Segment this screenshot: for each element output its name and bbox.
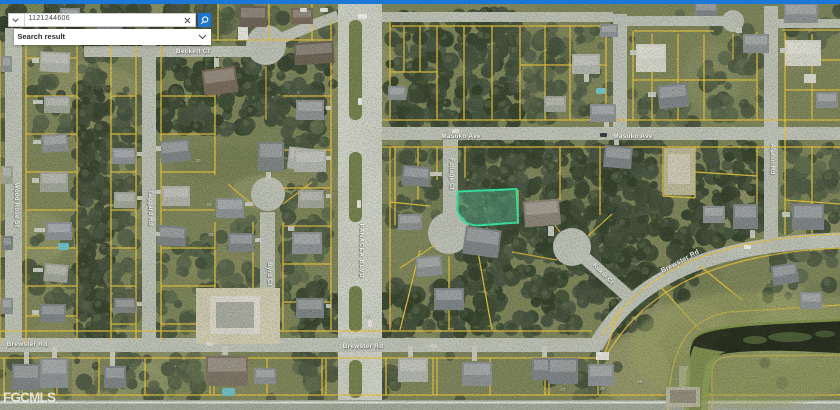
svg-text:Foliage Ct: Foliage Ct xyxy=(448,158,455,190)
svg-text:Brewster Rd: Brewster Rd xyxy=(7,341,48,348)
svg-text:27: 27 xyxy=(560,387,566,392)
svg-text:28: 28 xyxy=(364,313,370,318)
svg-text:Masuko Ave: Masuko Ave xyxy=(441,133,481,140)
svg-text:PANACEA BLVD: PANACEA BLVD xyxy=(358,224,364,279)
svg-text:Byrd Ct: Byrd Ct xyxy=(266,262,273,286)
svg-text:30: 30 xyxy=(195,158,201,163)
svg-text:Masuko Ave: Masuko Ave xyxy=(613,133,653,140)
svg-text:Brewster Rd: Brewster Rd xyxy=(343,343,384,350)
svg-text:26: 26 xyxy=(599,386,605,391)
svg-text:Wood Rose St: Wood Rose St xyxy=(13,183,20,227)
svg-text:25: 25 xyxy=(637,379,643,384)
svg-text:Alphin Rd: Alphin Rd xyxy=(769,143,776,174)
svg-text:32: 32 xyxy=(208,232,214,237)
svg-text:Beckett Ct: Beckett Ct xyxy=(176,48,211,55)
svg-text:33: 33 xyxy=(206,202,212,207)
svg-text:Taggard Rd: Taggard Rd xyxy=(147,190,154,226)
